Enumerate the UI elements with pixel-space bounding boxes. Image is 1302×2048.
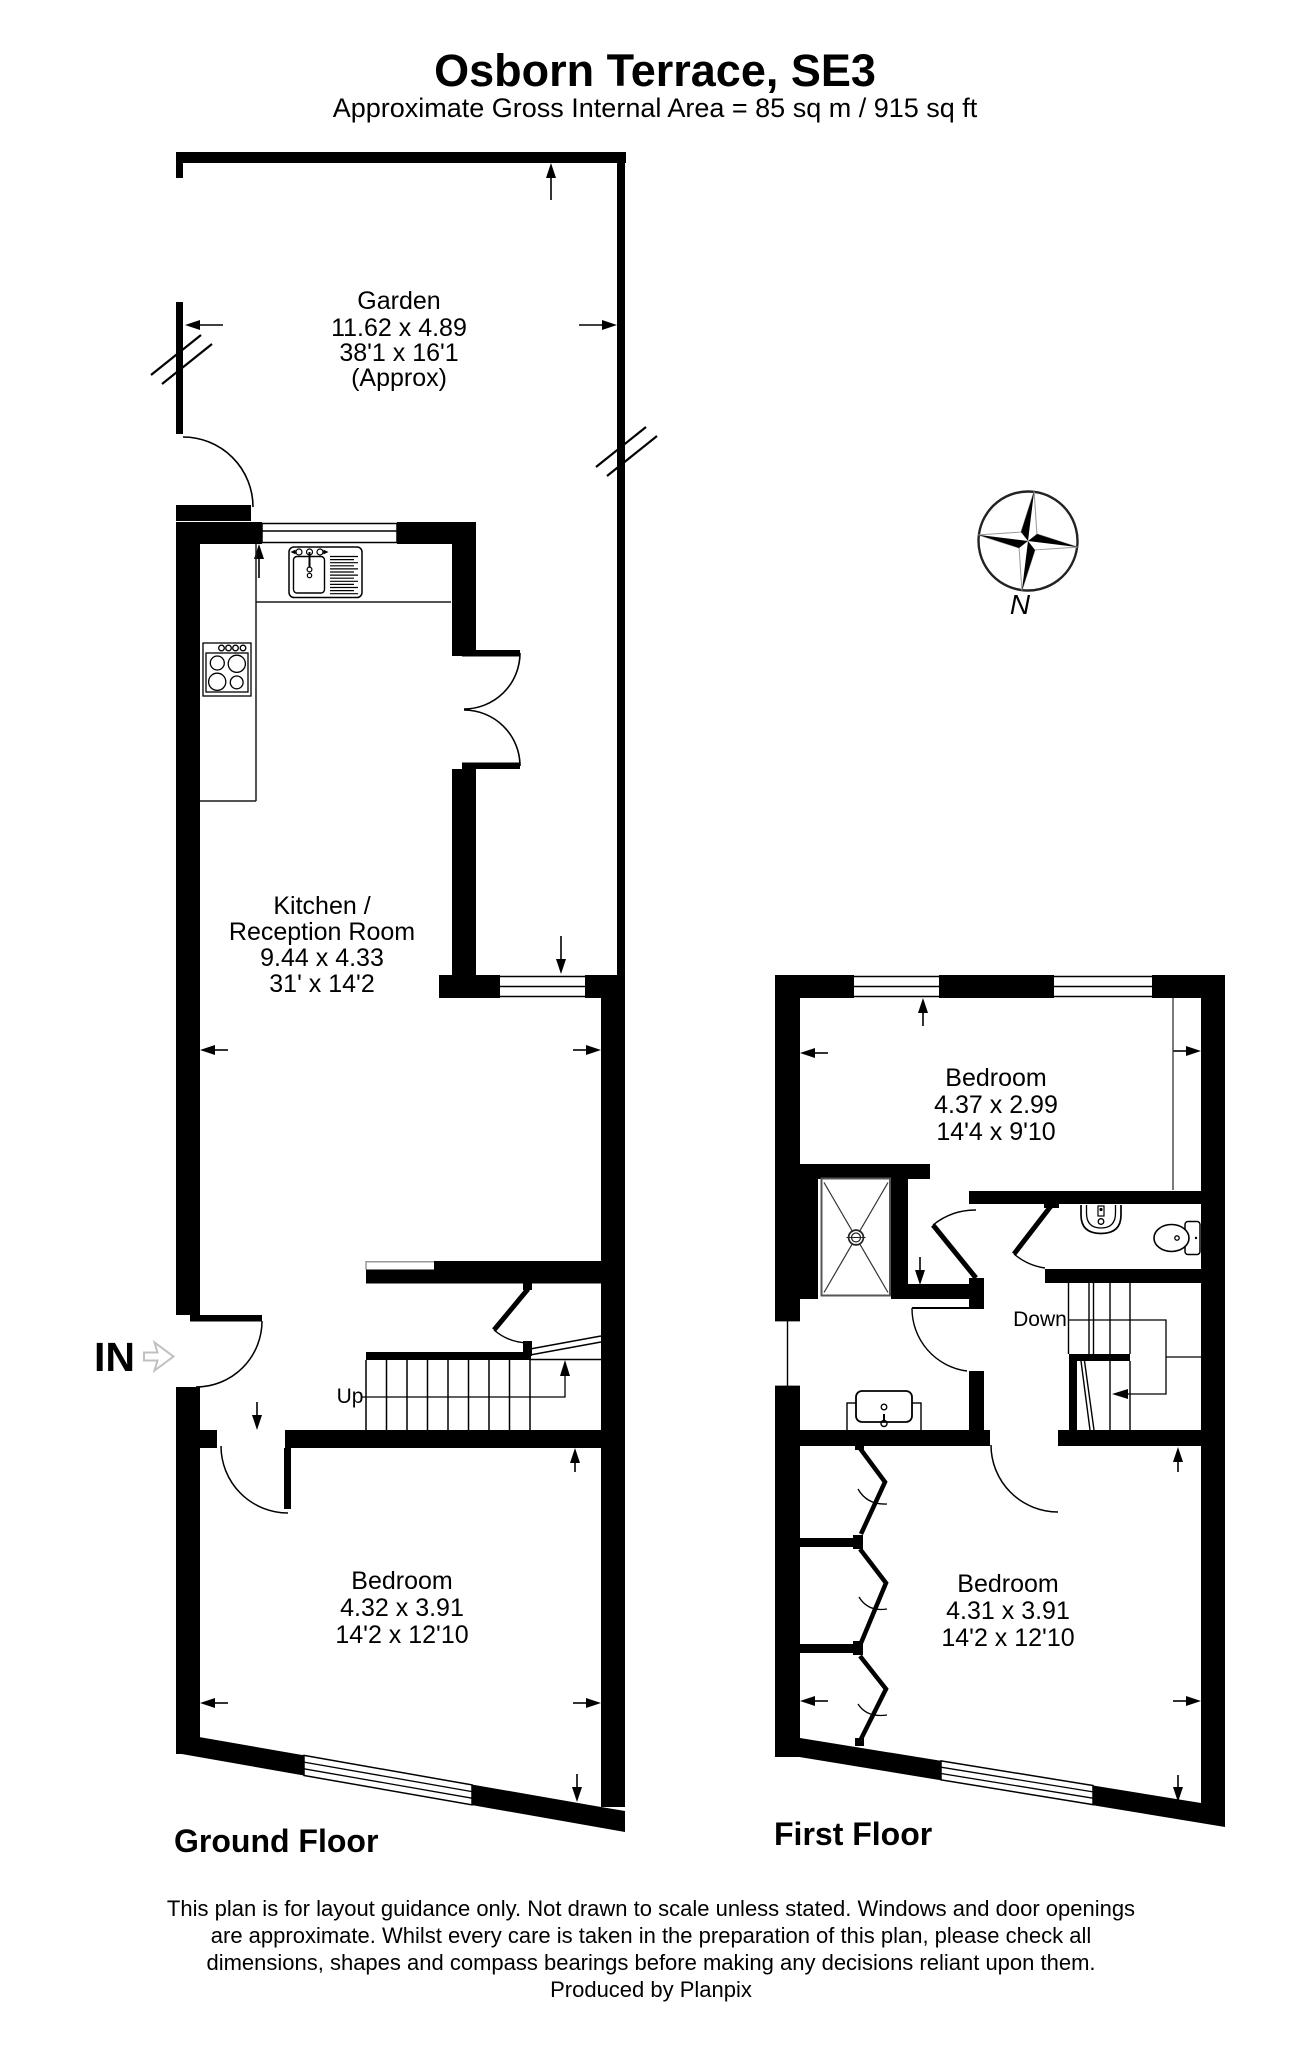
svg-text:IN: IN	[94, 1334, 135, 1380]
svg-text:Produced by Planpix: Produced by Planpix	[550, 1977, 752, 2002]
svg-text:Down: Down	[1013, 1308, 1067, 1331]
svg-text:11.62 x 4.89: 11.62 x 4.89	[331, 314, 467, 342]
svg-text:Kitchen /: Kitchen /	[273, 892, 370, 920]
svg-text:Reception Room: Reception Room	[229, 918, 415, 946]
svg-text:14'2 x 12'10: 14'2 x 12'10	[335, 1621, 468, 1649]
svg-text:Osborn Terrace, SE3: Osborn Terrace, SE3	[434, 45, 876, 96]
svg-text:Ground Floor: Ground Floor	[174, 1823, 378, 1859]
svg-text:Up: Up	[337, 1385, 364, 1408]
svg-text:Bedroom: Bedroom	[351, 1567, 452, 1595]
svg-text:First Floor: First Floor	[774, 1816, 932, 1852]
svg-text:(Approx): (Approx)	[351, 364, 447, 392]
svg-text:4.32 x 3.91: 4.32 x 3.91	[340, 1594, 464, 1622]
svg-text:dimensions, shapes and compass: dimensions, shapes and compass bearings …	[206, 1950, 1095, 1975]
svg-text:4.31 x 3.91: 4.31 x 3.91	[946, 1597, 1070, 1625]
svg-text:Bedroom: Bedroom	[945, 1064, 1046, 1092]
svg-text:This plan is for layout guidan: This plan is for layout guidance only. N…	[167, 1896, 1135, 1921]
svg-text:4.37 x 2.99: 4.37 x 2.99	[934, 1091, 1058, 1119]
svg-text:Bedroom: Bedroom	[957, 1570, 1058, 1598]
svg-text:are approximate. Whilst every: are approximate. Whilst every care is ta…	[211, 1923, 1091, 1948]
svg-text:9.44 x 4.33: 9.44 x 4.33	[260, 944, 384, 972]
svg-text:N: N	[1010, 589, 1031, 620]
svg-text:31' x 14'2: 31' x 14'2	[269, 970, 374, 998]
svg-text:Garden: Garden	[357, 287, 440, 315]
svg-text:14'4 x 9'10: 14'4 x 9'10	[936, 1118, 1055, 1146]
svg-text:Approximate Gross Internal Are: Approximate Gross Internal Area = 85 sq …	[333, 93, 978, 123]
svg-text:38'1 x 16'1: 38'1 x 16'1	[339, 339, 458, 367]
svg-text:14'2 x 12'10: 14'2 x 12'10	[941, 1624, 1074, 1652]
